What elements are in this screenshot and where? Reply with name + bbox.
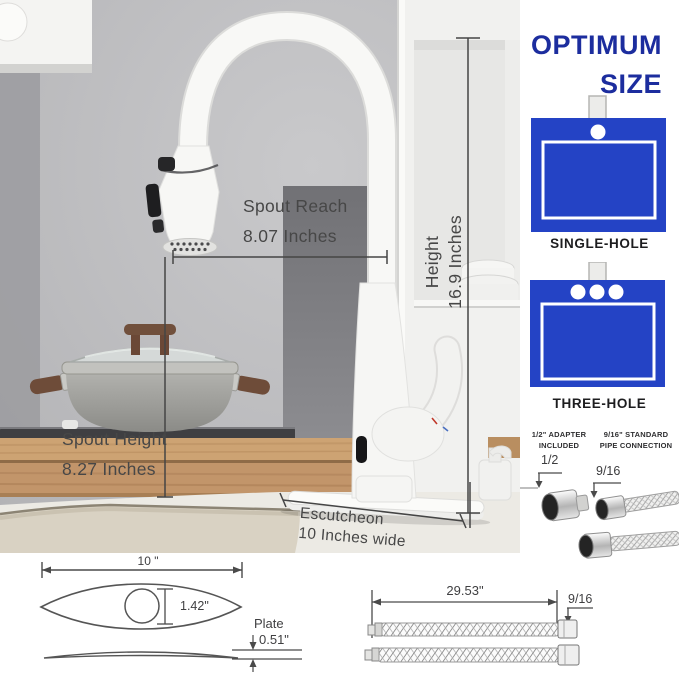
height-annotation: Height 16.9 Inches <box>421 197 467 327</box>
plate-width-label: 10 " <box>118 554 178 568</box>
three-hole-graphic <box>520 262 679 395</box>
stacked-bowls <box>458 260 518 300</box>
height-label: Height <box>421 197 444 327</box>
plate-thickness-label: 0.51" <box>259 632 289 647</box>
hose-drawing-1 <box>368 620 577 638</box>
shelf-top-left <box>0 0 92 73</box>
escutcheon-diagram <box>10 553 320 675</box>
counter <box>0 438 398 497</box>
height-value: 16.9 Inches <box>444 197 467 327</box>
spout-height-annotation: Spout Height 8.27 Inches <box>62 424 167 484</box>
single-hole-graphic <box>520 95 679 255</box>
three-hole-dots <box>571 285 624 300</box>
hose-photo-1 <box>594 487 679 521</box>
three-hole-label: THREE-HOLE <box>520 396 679 411</box>
plate-name-label: Plate <box>254 616 284 631</box>
adapter-note-line1: 1/2" ADAPTER <box>522 429 596 440</box>
panel-title-line1: OPTIMUM <box>531 26 662 65</box>
pipe-note-line1: 9/16" STANDARD <box>596 429 676 440</box>
spout-reach-value: 8.07 Inches <box>243 221 347 251</box>
plate-side-view <box>44 652 238 658</box>
single-hole-label: SINGLE-HOLE <box>520 236 679 251</box>
single-hole-dot <box>591 125 606 140</box>
product-infographic: { "annotations": { "spout_reach_1": "Spo… <box>0 0 679 675</box>
adapter-photo <box>540 488 589 522</box>
panel-title: OPTIMUM SIZE <box>531 26 662 104</box>
hose-diagram <box>330 553 679 675</box>
sensor-window <box>356 436 367 463</box>
hose-length-label: 29.53" <box>425 583 505 598</box>
spout-reach-label: Spout Reach <box>243 191 347 221</box>
spout-reach-annotation: Spout Reach 8.07 Inches <box>243 191 347 251</box>
plate-hole-label: 1.42" <box>180 599 209 613</box>
escutcheon-annotation: Escutcheon 10 Inches wide <box>298 504 408 552</box>
hose-drawing-2 <box>365 645 579 665</box>
spout-height-value: 8.27 Inches <box>62 454 167 484</box>
hose-size-label: 9/16 <box>568 592 592 606</box>
spout-height-label: Spout Height <box>62 424 167 454</box>
plate-hole <box>125 589 159 623</box>
